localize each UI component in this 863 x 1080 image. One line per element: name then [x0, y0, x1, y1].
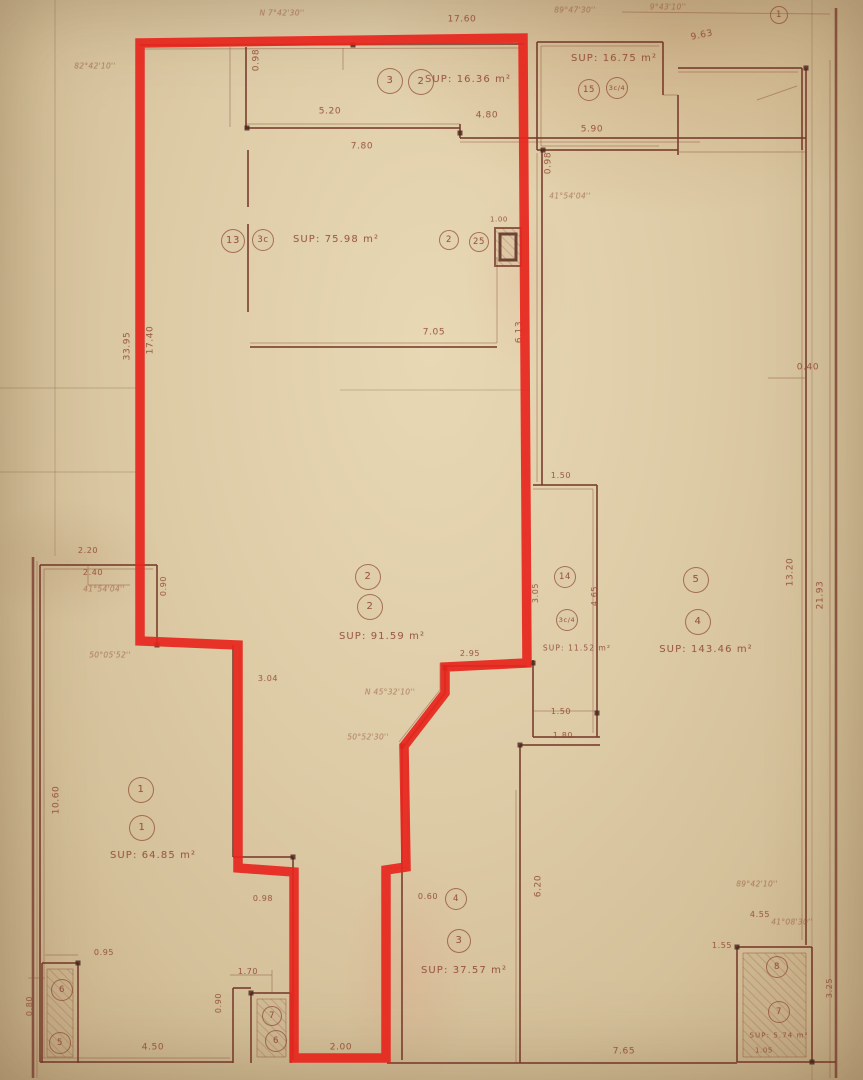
area-label: SUP: 16.36 m² [425, 75, 511, 85]
unit-number-badge: 5 [683, 567, 709, 593]
dimension-label: 13.20 [787, 558, 796, 587]
dimension-label: 1.50 [551, 472, 571, 480]
unit-number-badge: 5 [49, 1032, 71, 1054]
unit-number-badge: 3c/4 [606, 77, 628, 99]
dimension-label: 3.04 [258, 675, 278, 683]
dimension-label: 0.80 [26, 996, 34, 1016]
unit-number-badge: 3c/4 [556, 609, 578, 631]
area-label: SUP: 75.98 m² [293, 235, 379, 245]
bearing-label: 82°42'10'' [74, 62, 116, 70]
unit-number-badge: 1 [128, 777, 154, 803]
unit-number-badge: 4 [685, 609, 711, 635]
dimension-label: 4.50 [142, 1044, 164, 1053]
dimension-label: 7.05 [423, 329, 445, 338]
dimension-label: 0.60 [418, 893, 438, 901]
area-label: SUP: 64.85 m² [110, 851, 196, 861]
unit-number-badge: 15 [578, 79, 600, 101]
area-label: SUP: 37.57 m² [421, 966, 507, 976]
area-label: SUP: 16.75 m² [571, 54, 657, 64]
dimension-label: 2.95 [460, 650, 480, 658]
unit-number-badge: 14 [554, 566, 576, 588]
dimension-label: 0.98 [545, 152, 554, 174]
dimension-label: 3.05 [532, 583, 540, 603]
dimension-label: 17.40 [147, 326, 156, 355]
dimension-label: 6.13 [516, 321, 525, 343]
unit-number-badge: 13 [221, 229, 245, 253]
dimension-label: 2.00 [330, 1044, 352, 1053]
bearing-label: N 7°42'30'' [259, 9, 304, 17]
dimension-label: 21.93 [817, 581, 826, 610]
unit-number-badge: 3 [447, 929, 471, 953]
unit-number-badge: 6 [51, 979, 73, 1001]
dimension-label: 0.98 [253, 49, 262, 71]
scanned-plan-canvas: 17.600.985.204.807.805.909.630.980.407.0… [0, 0, 863, 1080]
bearing-label: N 45°32'10'' [365, 688, 415, 696]
area-label: SUP: 11.52 m² [543, 644, 611, 652]
dimension-label: 9.63 [690, 29, 714, 42]
dimension-label: 7.65 [613, 1048, 635, 1057]
dimension-label: 10.60 [53, 786, 62, 815]
dimension-label: 0.40 [797, 364, 819, 373]
unit-number-badge: 3c [252, 229, 274, 251]
unit-number-badge: 8 [766, 956, 788, 978]
unit-number-badge: 2 [439, 230, 459, 250]
dimension-label: 4.55 [750, 911, 770, 919]
dimension-label: 1.80 [553, 732, 573, 740]
dimension-label: 17.60 [448, 16, 477, 25]
dimension-label: 2.20 [78, 547, 98, 555]
dimension-label: 1.00 [490, 217, 508, 224]
dimension-label: 7.80 [351, 143, 373, 152]
dimension-label: 0.90 [215, 993, 223, 1013]
bearing-label: 9°43'10'' [650, 3, 687, 11]
unit-number-badge: 2 [355, 564, 381, 590]
bearing-label: 50°52'30'' [347, 733, 389, 741]
dimension-label: 0.95 [94, 949, 114, 957]
plan-labels: 17.600.985.204.807.805.909.630.980.407.0… [0, 0, 863, 1080]
unit-number-badge: 4 [445, 888, 467, 910]
dimension-label: 4.80 [476, 112, 498, 121]
dimension-label: 1.50 [551, 708, 571, 716]
dimension-label: 0.90 [160, 576, 168, 596]
bearing-label: 41°54'04'' [83, 585, 125, 593]
unit-number-badge: 2 [357, 594, 383, 620]
unit-number-badge: 6 [265, 1030, 287, 1052]
area-label: SUP: 91.59 m² [339, 632, 425, 642]
dimension-label: 5.90 [581, 126, 603, 135]
unit-number-badge: 7 [262, 1006, 282, 1026]
dimension-label: 3.25 [826, 978, 834, 998]
bearing-label: 50°05'52'' [89, 651, 131, 659]
unit-number-badge: 1 [129, 815, 155, 841]
unit-number-badge: 25 [469, 232, 489, 252]
area-label: SUP: 5.74 m² [749, 1033, 808, 1040]
dimension-label: 1.55 [712, 942, 732, 950]
dimension-label: 33.95 [124, 332, 133, 361]
dimension-label: 0.98 [253, 895, 273, 903]
bearing-label: 41°08'30'' [771, 918, 813, 926]
dimension-label: 6.20 [535, 875, 544, 897]
dimension-label: 1.05 [755, 1048, 773, 1055]
bearing-label: 89°42'10'' [736, 880, 778, 888]
dimension-label: 2.40 [83, 569, 103, 577]
unit-number-badge: 2 [408, 69, 434, 95]
dimension-label: 5.20 [319, 108, 341, 117]
unit-number-badge: 3 [377, 68, 403, 94]
area-label: SUP: 143.46 m² [659, 645, 753, 655]
bearing-label: 89°47'30'' [554, 6, 596, 14]
dimension-label: 4.65 [591, 586, 599, 606]
dimension-label: 1.70 [238, 968, 258, 976]
bearing-label: 41°54'04'' [549, 192, 591, 200]
unit-number-badge: 1 [770, 6, 788, 24]
unit-number-badge: 7 [768, 1001, 790, 1023]
